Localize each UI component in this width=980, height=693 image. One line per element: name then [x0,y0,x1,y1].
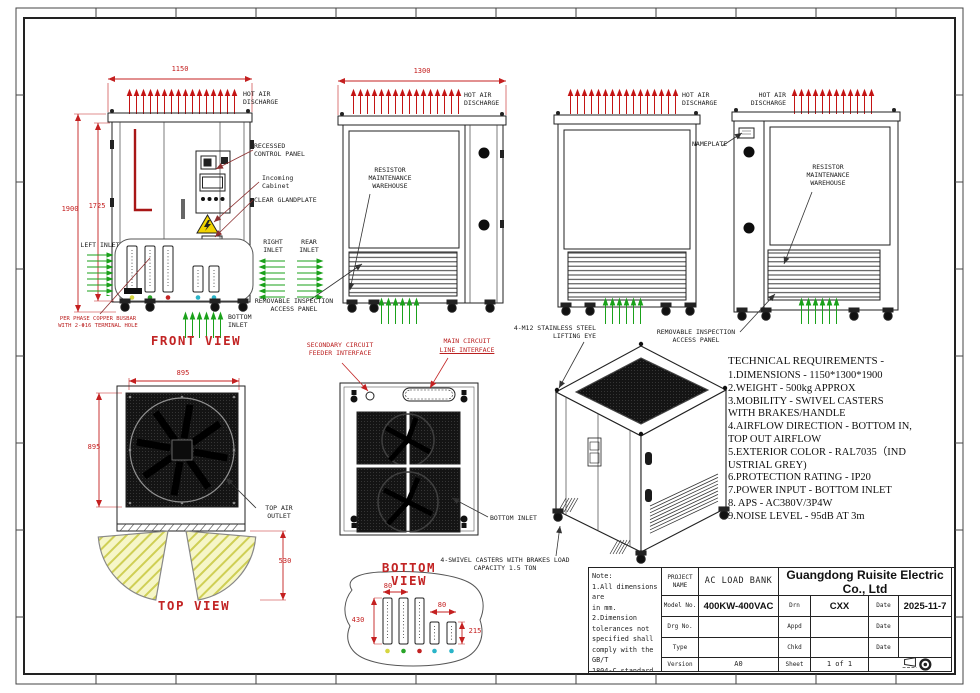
drn-value: CXX [811,596,869,617]
date-value-3 [899,638,952,658]
tr-line: 3.MOBILITY - SWIVEL CASTERS [728,396,960,409]
label-nameplate: NAMEPLATE [692,140,736,148]
dim-door-swing: 530 [272,558,298,565]
appd-label: Appd [779,617,811,638]
dim-top-width: 895 [128,370,238,377]
label-resistor-warehouse-1: RESISTOR MAINTENANCE WAREHOUSE [360,166,420,190]
label-bottom-inlet-front: BOTTOM INLET [228,313,268,329]
drn-label: Drn [779,596,811,617]
date-label-2: Date [869,617,899,638]
type-label: Type [662,638,699,658]
label-main-circuit-line1: MAIN CIRCUIT [424,337,510,345]
tr-line: 8. APS - AC380V/3P4W [728,498,960,511]
label-bottom-inlet-bottom: BOTTOM INLET [490,514,550,522]
label-resistor-warehouse-2: RESISTOR MAINTENANCE WAREHOUSE [798,163,858,187]
label-removable-panel-1: REMOVABLE INSPECTION ACCESS PANEL [250,297,338,313]
label-right-inlet: RIGHT INLET [256,238,290,254]
label-main-circuit-line2: LINE INTERFACE [424,346,510,354]
label-top-air-outlet: TOP AIR OUTLET [254,504,304,520]
project-name-value: AC LOAD BANK [699,568,779,596]
title-block: Note: 1.All dimensions are in mm. 2.Dime… [588,567,955,674]
title-block-note: Note: 1.All dimensions are in mm. 2.Dime… [589,568,662,672]
drg-label: Drg No. [662,617,699,638]
dim-busbar-pitch-1: 80 [376,583,400,590]
label-lifting-eye: 4-M12 STAINLESS STEEL LIFTING EYE [502,324,596,340]
appd-value [811,617,869,638]
front-view-title: FRONT VIEW [148,335,244,348]
top-view-title: TOP VIEW [146,600,242,613]
control-panel [196,151,230,213]
tr-line: TOP OUT AIRFLOW [728,434,960,447]
label-swivel-casters: 4-SWIVEL CASTERS WITH BRAKES LOAD CAPACI… [440,556,570,572]
door-swing-left [98,531,168,600]
type-value [699,638,779,658]
side-view2-drawing [732,88,900,332]
version-value: A0 [699,658,779,672]
label-recessed-control-panel: RECESSED CONTROL PANEL [254,142,314,158]
chkd-label: Chkd [779,638,811,658]
dim-total-height: 1900 [58,206,82,213]
sheet-value: 1 of 1 [811,658,869,672]
dim-side-width: 1300 [356,68,488,75]
side-view-drawing [338,81,506,324]
dim-body-height: 1725 [84,203,110,210]
dim-busbar-main-len: 430 [346,617,370,624]
dim-busbar-short-len: 215 [462,628,488,635]
project-name-label: PROJECT NAME [662,568,699,596]
version-label: Version [662,658,699,672]
label-hot-air-discharge-3: HOT AIR DISCHARGE [682,91,728,107]
date-label-1: Date [869,596,899,617]
tr-line: WITH BRAKES/HANDLE [728,408,960,421]
first-angle-projection-icon [869,658,952,672]
dim-front-width: 1150 [114,66,246,73]
label-removable-panel-2: REMOVABLE INSPECTION ACCESS PANEL [644,328,748,344]
tr-line: 5.EXTERIOR COLOR - RAL7035（IND [728,447,960,460]
tr-line: 7.POWER INPUT - BOTTOM INLET [728,485,960,498]
date-value-1: 2025-11-7 [899,596,952,617]
tr-line: 4.AIRFLOW DIRECTION - BOTTOM IN, [728,421,960,434]
tr-line: 6.PROTECTION RATING - IP20 [728,472,960,485]
tr-line: USTRIAL GREY) [728,460,960,473]
dim-top-depth: 895 [82,444,106,451]
top-view-drawing [96,378,286,600]
label-secondary-feeder: SECONDARY CIRCUIT FEEDER INTERFACE [294,341,386,357]
technical-requirements-title: TECHNICAL REQUIREMENTS - [728,354,960,370]
label-hot-air-discharge-2: HOT AIR DISCHARGE [464,91,510,107]
red-door-stripe [135,129,152,210]
door-swing-right [186,531,256,600]
label-incoming-cabinet: Incoming Cabinet [262,174,302,190]
label-busbar-note: PER PHASE COPPER BUSBAR WITH 2-Φ16 TERMI… [46,316,150,331]
date-label-3: Date [869,638,899,658]
isometric-view-drawing [553,342,729,563]
drg-value [699,617,779,638]
sheet-label: Sheet [779,658,811,672]
chkd-value [811,638,869,658]
bottom-view-drawing [340,358,488,535]
label-hot-air-discharge-1: HOT AIR DISCHARGE [243,90,289,106]
dim-busbar-pitch-2: 80 [430,602,454,609]
date-value-2 [899,617,952,638]
company-name: Guangdong Ruisite Electric Co., Ltd [779,568,952,596]
tr-line: 1.DIMENSIONS - 1150*1300*1900 [728,370,960,383]
drawing-sheet: 1150 HOT AIR DISCHARGE RECESSED CONTROL … [0,0,980,693]
rear-view-drawing [554,88,742,324]
tr-line: 2.WEIGHT - 500kg APPROX [728,383,960,396]
nameplate-plate [739,128,754,138]
label-rear-inlet: REAR INLET [292,238,326,254]
label-left-inlet: LEFT INLET [78,241,122,249]
technical-requirements: TECHNICAL REQUIREMENTS - 1.DIMENSIONS - … [728,354,960,524]
tr-line: 9.NOISE LEVEL - 95dB AT 3m [728,511,960,524]
model-label: Model No. [662,596,699,617]
model-value: 400KW-400VAC [699,596,779,617]
label-clear-glandplate: CLEAR GLANDPLATE [254,196,334,204]
label-hot-air-discharge-4: HOT AIR DISCHARGE [740,91,786,107]
